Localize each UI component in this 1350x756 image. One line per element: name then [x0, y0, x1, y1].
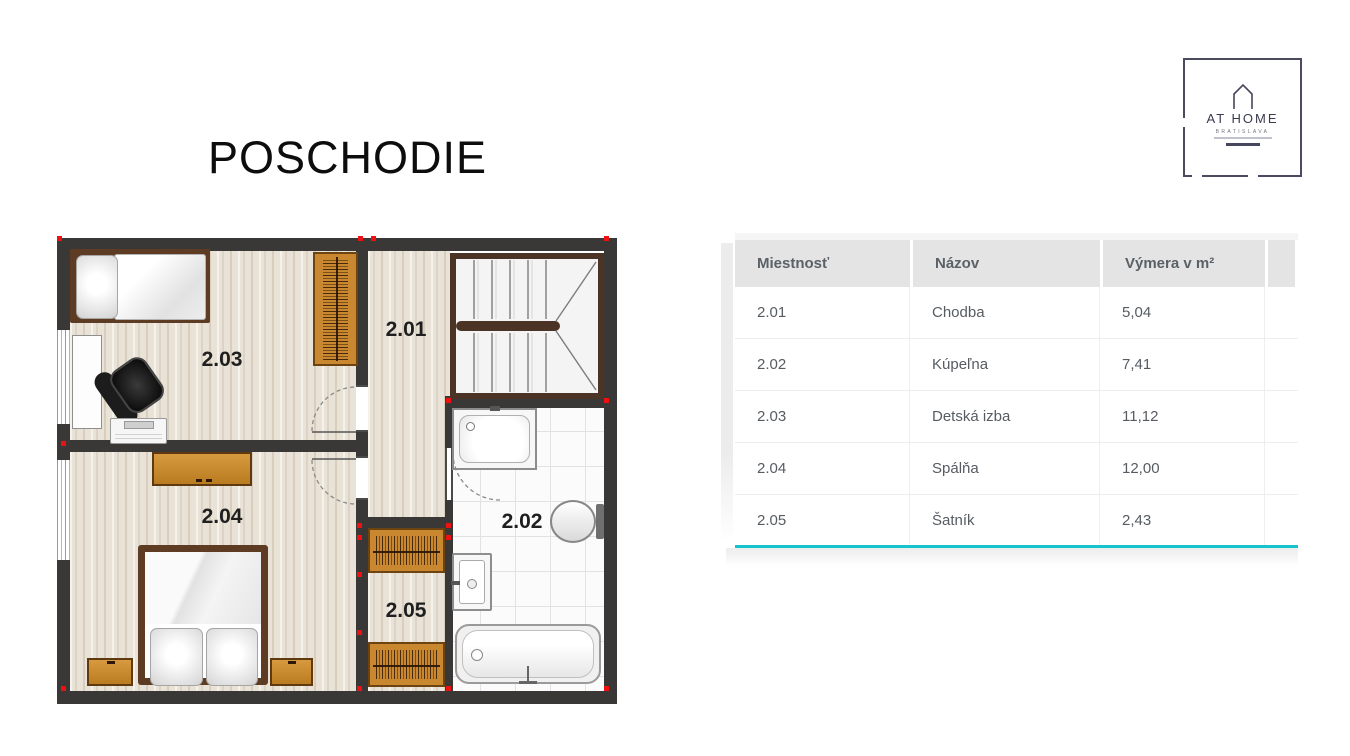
logo-border-gap [1192, 173, 1202, 177]
cad-corner-marker [446, 398, 451, 403]
table-header-row: Miestnosť Názov Výmera v m² [735, 240, 1298, 287]
staircase [450, 253, 604, 399]
bathtub [455, 624, 601, 684]
cell-empty [1265, 495, 1295, 546]
cell-empty [1265, 287, 1295, 338]
dresser [152, 452, 252, 486]
shower-tray [452, 408, 537, 470]
cad-corner-marker [446, 535, 451, 540]
wall-outer-right [604, 238, 617, 704]
logo-tagline-bar [1214, 137, 1272, 139]
room-table: Miestnosť Názov Výmera v m² 2.01 Chodba … [735, 240, 1298, 547]
table-row: 2.03 Detská izba 11,12 [735, 391, 1298, 443]
logo-name: AT HOME [1206, 111, 1278, 126]
table-header-empty [1268, 240, 1295, 287]
cad-corner-marker [604, 686, 609, 691]
toilet [550, 497, 606, 546]
logo-city: BRATISLAVA [1216, 129, 1270, 135]
sink [452, 553, 492, 611]
cad-corner-marker [57, 236, 62, 241]
floor-corridor-201 [368, 251, 450, 530]
table-header-nazov: Názov [913, 240, 1100, 287]
room-label-201: 2.01 [382, 318, 430, 342]
keyboard-tray [110, 418, 167, 444]
cad-corner-marker [61, 441, 66, 446]
logo-underline [1226, 143, 1260, 146]
cad-corner-marker [446, 686, 451, 691]
cell-room-name: Kúpeľna [910, 339, 1100, 390]
cell-empty [1265, 391, 1295, 442]
window-room-204 [57, 457, 70, 563]
table-header-vymera: Výmera v m² [1103, 240, 1265, 287]
double-bed [138, 545, 268, 685]
nightstand-left [87, 658, 133, 686]
wardrobe-closet-bottom [368, 642, 445, 687]
logo-border-gap [1183, 118, 1187, 127]
nightstand-right [270, 658, 313, 686]
room-label-205: 2.05 [382, 599, 430, 623]
cad-corner-marker [604, 398, 609, 403]
cell-room-name: Detská izba [910, 391, 1100, 442]
cad-corner-marker [357, 535, 362, 540]
logo-border-gap [1248, 173, 1258, 177]
cell-room-area: 12,00 [1100, 443, 1265, 494]
cell-room-id: 2.01 [735, 287, 910, 338]
cad-corner-marker [61, 686, 66, 691]
cell-room-id: 2.05 [735, 495, 910, 546]
wardrobe-closet-top [368, 528, 445, 573]
cell-room-id: 2.04 [735, 443, 910, 494]
room-label-202: 2.02 [498, 510, 546, 534]
cell-empty [1265, 339, 1295, 390]
cell-room-area: 7,41 [1100, 339, 1265, 390]
wall-corridor-west-b [356, 432, 368, 456]
cad-corner-marker [604, 236, 609, 241]
table-left-shadow [721, 243, 733, 543]
wall-outer-bottom [57, 691, 617, 704]
cell-room-name: Spálňa [910, 443, 1100, 494]
table-row: 2.04 Spálňa 12,00 [735, 443, 1298, 495]
shower-tap [490, 406, 500, 411]
table-row: 2.05 Šatník 2,43 [735, 495, 1298, 547]
room-label-204: 2.04 [198, 505, 246, 529]
cell-room-id: 2.03 [735, 391, 910, 442]
cad-corner-marker [371, 236, 376, 241]
sink-tap [451, 581, 460, 585]
table-bottom-shadow [726, 548, 1298, 566]
table-row: 2.01 Chodba 5,04 [735, 287, 1298, 339]
table-header-miestnost: Miestnosť [735, 240, 910, 287]
cad-corner-marker [357, 523, 362, 528]
cell-room-area: 5,04 [1100, 287, 1265, 338]
house-icon [1229, 82, 1257, 110]
cad-corner-marker [357, 572, 362, 577]
door-opening-204 [356, 456, 368, 500]
cell-room-id: 2.02 [735, 339, 910, 390]
cell-room-area: 2,43 [1100, 495, 1265, 546]
door-opening-203 [356, 385, 368, 432]
wardrobe-tall [313, 252, 358, 366]
cad-corner-marker [358, 236, 363, 241]
window-room-203 [57, 327, 70, 427]
page-title: POSCHODIE [208, 132, 487, 184]
bathtub-tap [527, 666, 529, 682]
cell-room-area: 11,12 [1100, 391, 1265, 442]
cell-room-name: Chodba [910, 287, 1100, 338]
cell-empty [1265, 443, 1295, 494]
cad-corner-marker [357, 686, 362, 691]
single-bed [70, 249, 210, 323]
cad-corner-marker [357, 630, 362, 635]
company-logo: AT HOME BRATISLAVA [1183, 58, 1302, 177]
room-label-203: 2.03 [198, 348, 246, 372]
floor-plan: 2.01 2.02 2.03 2.04 2.05 [57, 238, 617, 704]
table-top-edge [735, 233, 1298, 240]
cell-room-name: Šatník [910, 495, 1100, 546]
cad-corner-marker [446, 523, 451, 528]
table-row: 2.02 Kúpeľna 7,41 [735, 339, 1298, 391]
